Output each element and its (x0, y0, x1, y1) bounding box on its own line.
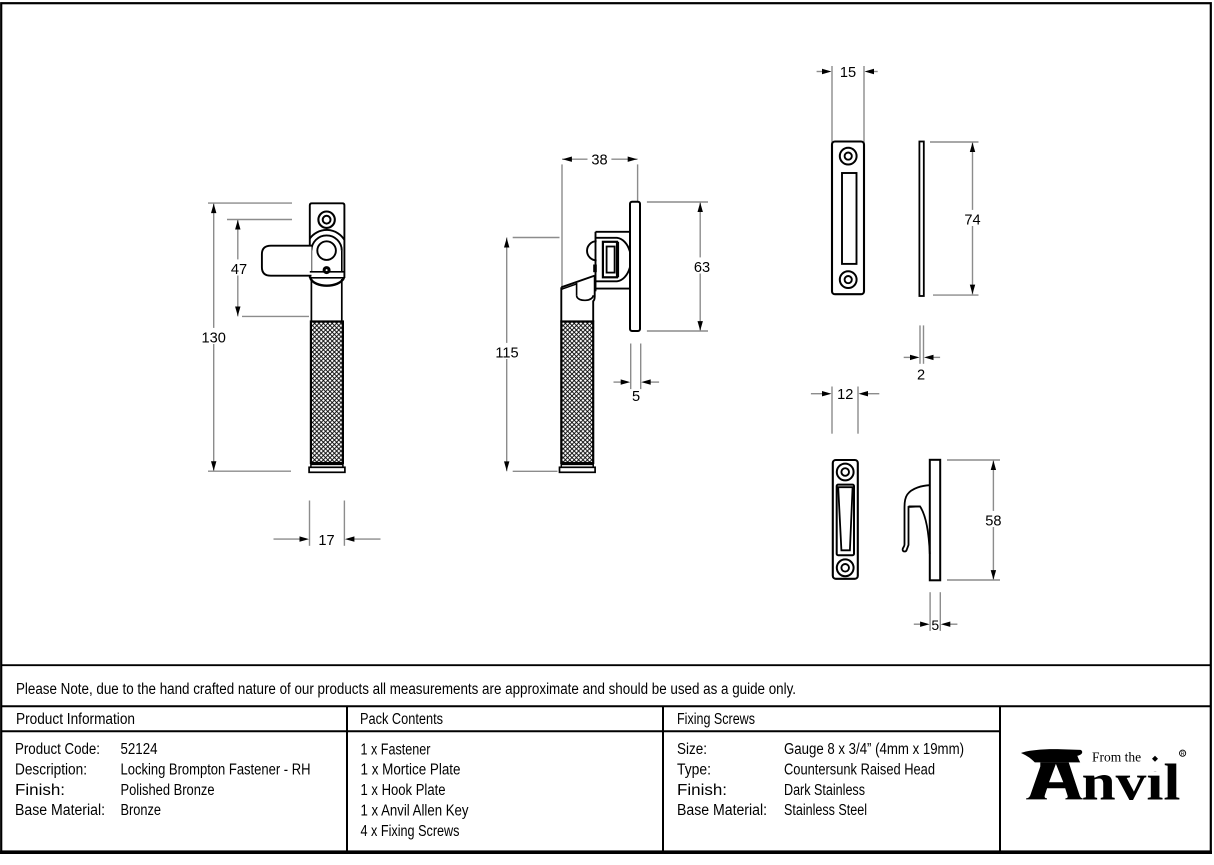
svg-text:38: 38 (591, 153, 607, 169)
svg-text:Please Note, due to the hand c: Please Note, due to the hand crafted nat… (16, 681, 796, 698)
svg-text:Bronze: Bronze (121, 802, 162, 819)
svg-text:Base Material:: Base Material: (677, 802, 767, 819)
svg-text:Base Material:: Base Material: (15, 802, 105, 819)
svg-text:15: 15 (840, 65, 856, 81)
svg-text:Fixing Screws: Fixing Screws (677, 711, 755, 728)
svg-text:Pack Contents: Pack Contents (360, 711, 443, 728)
svg-text:Description:: Description: (15, 761, 87, 778)
svg-text:4 x Fixing Screws: 4 x Fixing Screws (361, 823, 460, 840)
svg-text:74: 74 (964, 212, 980, 228)
svg-text:Product Information: Product Information (16, 711, 135, 728)
svg-text:5: 5 (931, 617, 939, 633)
svg-text:63: 63 (694, 260, 710, 276)
svg-text:12: 12 (837, 387, 853, 403)
svg-text:Finish:: Finish: (677, 782, 727, 799)
svg-text:58: 58 (985, 513, 1001, 529)
svg-text:R: R (1181, 751, 1185, 757)
svg-text:115: 115 (495, 345, 518, 361)
svg-text:Finish:: Finish: (15, 782, 65, 799)
svg-text:Countersunk Raised Head: Countersunk Raised Head (784, 761, 935, 778)
svg-text:Stainless Steel: Stainless Steel (784, 802, 867, 819)
svg-text:Product Code:: Product Code: (15, 741, 100, 758)
svg-text:130: 130 (202, 330, 226, 346)
svg-text:2: 2 (917, 367, 925, 383)
svg-text:1 x Mortice Plate: 1 x Mortice Plate (361, 762, 461, 779)
svg-text:1 x Fastener: 1 x Fastener (361, 741, 431, 758)
svg-text:Locking Brompton Fastener - RH: Locking Brompton Fastener - RH (121, 761, 311, 778)
svg-text:47: 47 (231, 262, 247, 278)
svg-text:Size:: Size: (677, 741, 707, 758)
svg-text:From the: From the (1092, 749, 1141, 764)
svg-text:Gauge 8 x 3/4” (4mm x 19mm): Gauge 8 x 3/4” (4mm x 19mm) (784, 741, 964, 758)
svg-text:Type:: Type: (677, 761, 711, 778)
svg-text:1 x Anvil Allen Key: 1 x Anvil Allen Key (361, 803, 469, 820)
svg-text:5: 5 (632, 389, 640, 405)
svg-text:1 x Hook Plate: 1 x Hook Plate (361, 782, 446, 799)
svg-text:52124: 52124 (121, 741, 158, 758)
svg-text:Polished Bronze: Polished Bronze (121, 782, 215, 799)
svg-text:Dark Stainless: Dark Stainless (784, 782, 865, 799)
svg-text:17: 17 (318, 533, 334, 549)
